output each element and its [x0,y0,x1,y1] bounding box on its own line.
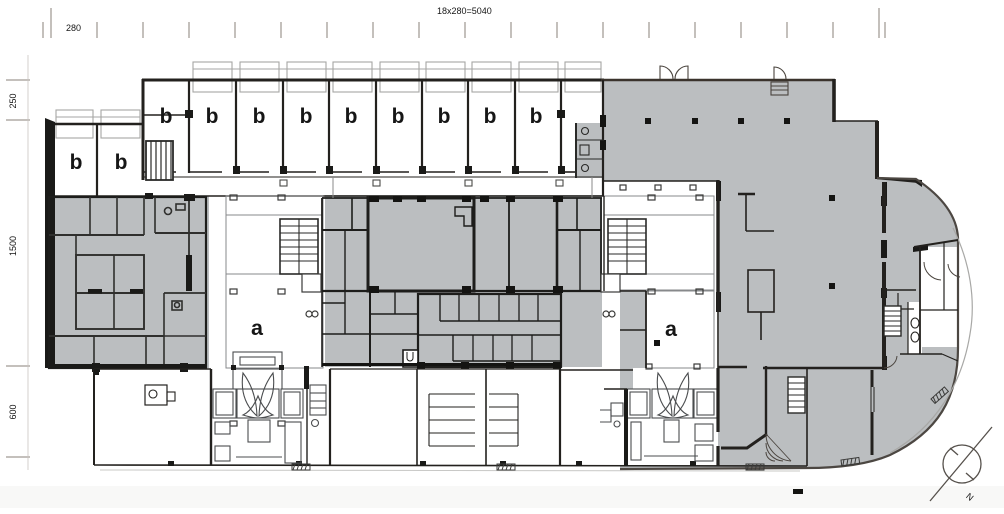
svg-text:600: 600 [8,404,18,419]
svg-text:b: b [392,105,405,128]
svg-text:280: 280 [66,23,81,33]
svg-text:b: b [206,105,219,128]
svg-text:b: b [300,105,313,128]
svg-text:b: b [438,105,451,128]
svg-text:b: b [530,105,543,128]
svg-text:b: b [484,105,497,128]
svg-text:b: b [160,105,173,128]
svg-text:18x280=5040: 18x280=5040 [437,6,492,16]
svg-text:b: b [70,151,83,174]
svg-text:1500: 1500 [8,236,18,256]
svg-text:b: b [345,105,358,128]
svg-text:b: b [115,151,128,174]
svg-text:b: b [253,105,266,128]
svg-text:a: a [665,317,678,341]
svg-text:a: a [251,316,264,340]
svg-text:250: 250 [8,93,18,108]
